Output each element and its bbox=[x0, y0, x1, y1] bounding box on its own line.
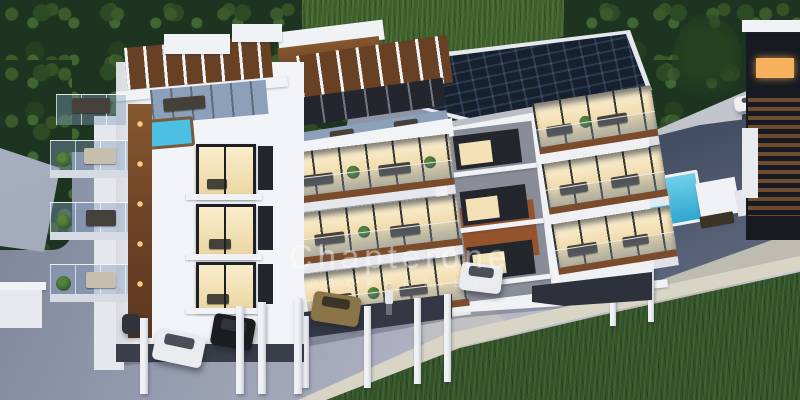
narrow-window bbox=[258, 146, 273, 190]
neighbor-lit-window bbox=[756, 58, 794, 78]
accent-window bbox=[453, 128, 523, 170]
balcony-furniture bbox=[86, 210, 116, 226]
balcony-slab bbox=[186, 308, 262, 314]
watermark: Chapterone PROPERTIES bbox=[160, 240, 640, 294]
wood-slat-feature-wall bbox=[128, 104, 152, 338]
pilotis-column bbox=[258, 302, 266, 394]
balcony-furniture bbox=[84, 148, 116, 164]
pilotis-column bbox=[414, 298, 421, 384]
neighbor-roof-edge bbox=[742, 20, 800, 32]
balcony-plant bbox=[56, 214, 71, 229]
palm-canopy bbox=[672, 14, 742, 110]
watermark-brand-text: Chapterone bbox=[160, 240, 640, 274]
window-mullion bbox=[224, 147, 226, 195]
pilotis-column bbox=[444, 294, 451, 382]
roof-stair-box bbox=[164, 34, 230, 54]
balcony-plant bbox=[56, 276, 71, 291]
lit-window bbox=[196, 144, 256, 198]
car-windshield bbox=[163, 333, 195, 351]
terrace-furniture bbox=[72, 98, 110, 113]
architectural-render-scene: Chapterone PROPERTIES bbox=[0, 0, 800, 400]
lit-interior bbox=[465, 196, 499, 222]
watermark-subtitle-text: PROPERTIES bbox=[160, 274, 640, 294]
pilotis-column bbox=[140, 318, 148, 394]
neighbor-balcony-edge bbox=[742, 128, 758, 198]
balcony-plant bbox=[56, 152, 71, 167]
pilotis-column bbox=[364, 306, 371, 388]
side-balcony-slab bbox=[50, 170, 128, 178]
car-windshield bbox=[321, 295, 351, 310]
hot-tub bbox=[145, 116, 195, 150]
roof-stair-box bbox=[232, 24, 282, 42]
lit-interior bbox=[459, 140, 493, 166]
left-boundary-fence bbox=[0, 282, 46, 290]
side-balcony-slab bbox=[50, 294, 128, 302]
balcony-furniture bbox=[86, 272, 116, 288]
pilotis-column bbox=[294, 298, 302, 394]
side-balcony-slab bbox=[50, 232, 128, 240]
left-boundary-wall bbox=[0, 290, 42, 328]
apartment-floor bbox=[542, 145, 669, 214]
car-small-dark bbox=[122, 314, 140, 334]
balcony-slab bbox=[186, 194, 262, 200]
middle-block-floors bbox=[284, 134, 469, 323]
person-legs bbox=[386, 304, 392, 315]
pilotis-column bbox=[236, 306, 244, 394]
